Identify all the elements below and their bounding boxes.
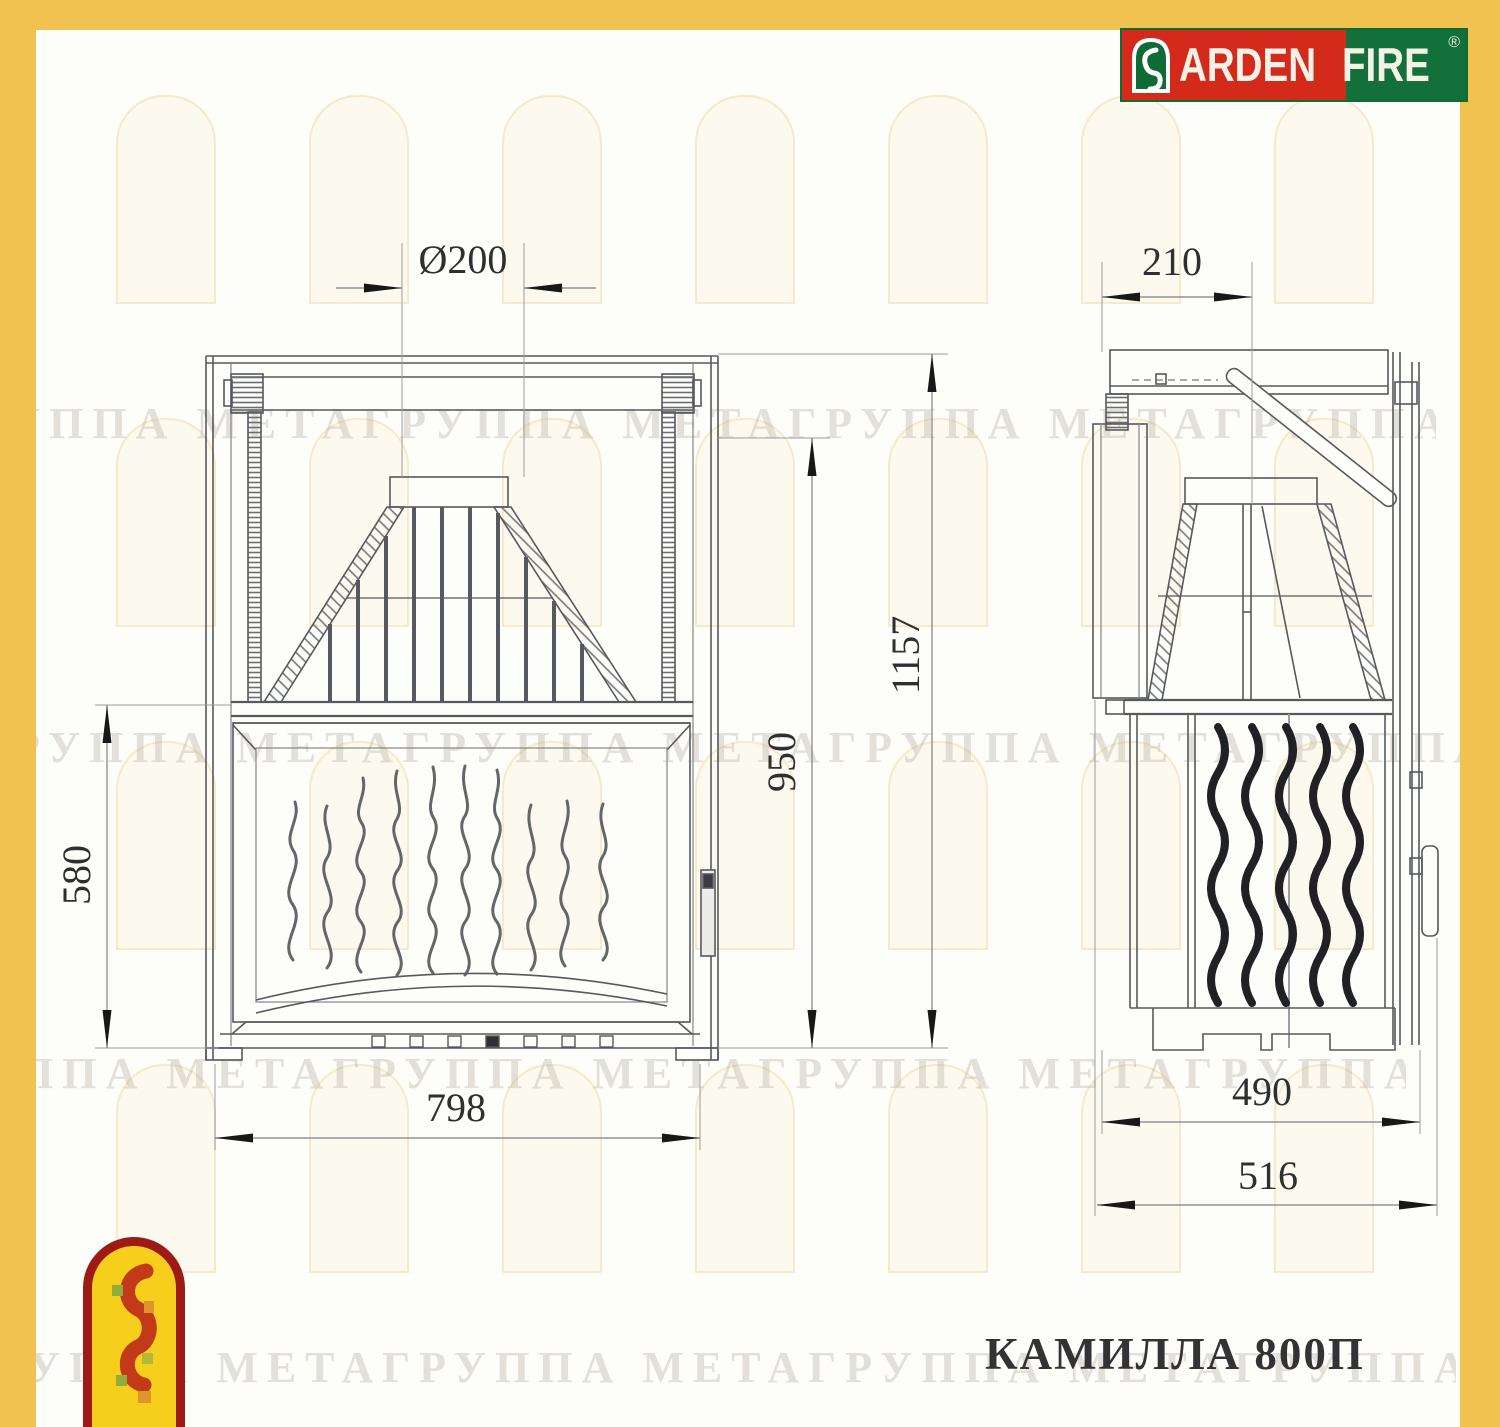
watermark-arch [116,95,216,304]
watermark-text-row: ГРУППА МЕТАГРУППА МЕТАГРУППА МЕТАГРУППА … [36,398,1436,449]
logo-red-panel: ARDEN [1122,30,1346,100]
registered-trademark-icon: ® [1448,34,1460,52]
watermark-arch [309,418,409,627]
watermark-arch [502,418,602,627]
dim-label-body-depth: 490 [1202,1070,1322,1114]
drawing-canvas: ГРУППА МЕТАГРУППА МЕТАГРУППА МЕТАГРУППА … [36,30,1460,1427]
watermark-arch [888,95,988,304]
logo-text-arden: ARDEN [1179,30,1316,100]
watermark-arch [116,418,216,627]
ardenfire-logo: ARDEN FIRE ® [1120,28,1468,102]
watermark-arch [695,95,795,304]
dim-label-overall-depth: 516 [1208,1154,1328,1198]
logo-green-panel: FIRE ® [1346,30,1466,100]
logo-text-fire: FIRE [1342,30,1430,100]
dim-label-overall-height: 1157 [884,595,928,715]
watermark-arch [1274,418,1374,627]
dim-label-firebox-height: 580 [55,815,99,935]
dim-label-flue-offset: 210 [1112,240,1232,284]
watermark-arch [309,95,409,304]
metagroup-emblem [83,1237,185,1427]
watermark-arch [1274,95,1374,304]
watermark-text-row: ГРУППА МЕТАГРУППА МЕТАГРУППА МЕТАГРУППА … [36,1048,1406,1099]
watermark-text-row: ГРУППА МЕТАГРУППА МЕТАГРУППА МЕТАГРУППА … [36,722,1460,773]
product-title: КАМИЛЛА 800П [985,1328,1365,1380]
watermark-arch [1081,418,1181,627]
dim-label-flue-diameter: Ø200 [403,238,523,282]
dim-label-opening-height: 950 [760,702,804,822]
watermark-arch [695,418,795,627]
flame-figure-icon [98,1257,170,1417]
dim-label-overall-width: 798 [396,1086,516,1130]
fireplace-arch-icon [1131,37,1171,93]
page: ГРУППА МЕТАГРУППА МЕТАГРУППА МЕТАГРУППА … [0,0,1500,1427]
